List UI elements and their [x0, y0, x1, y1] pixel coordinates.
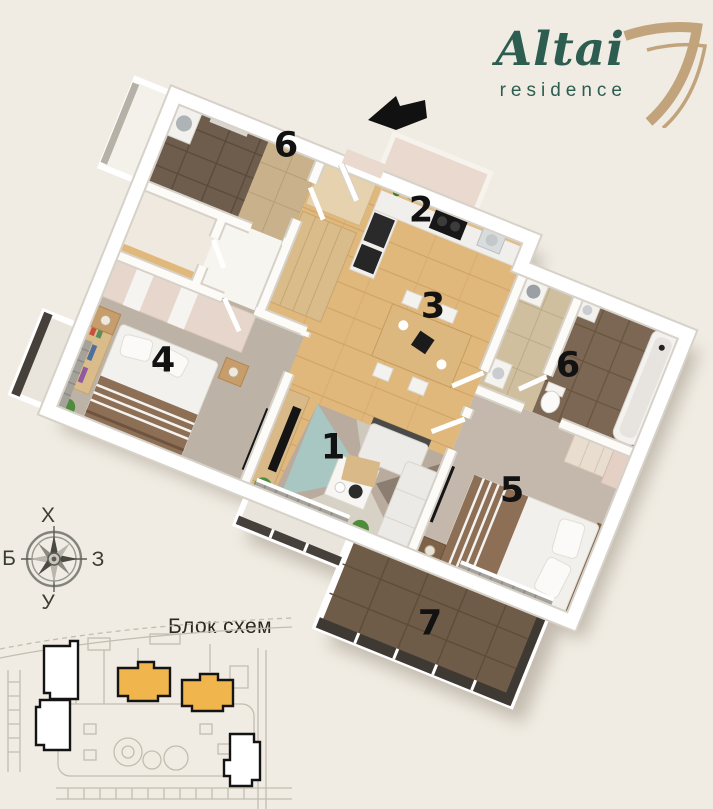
entrance-arrow: [368, 96, 427, 130]
siteplan: [0, 612, 292, 809]
compass-top-label: Х: [41, 504, 55, 528]
building-outline-1: [44, 641, 78, 699]
brand-logo: Altai residence: [455, 8, 707, 128]
room-label-bathroom: 6: [556, 349, 580, 384]
room-label-shower: 6: [274, 129, 298, 164]
room-label-balcony: 7: [418, 607, 442, 642]
building-highlight-1: [118, 662, 170, 701]
room-label-living: 1: [321, 431, 345, 466]
building-outline-2: [36, 700, 70, 750]
siteplan-buildings: [36, 641, 260, 786]
compass-rose: Х Б З У: [0, 496, 120, 620]
brand-subtitle: residence: [500, 80, 627, 102]
building-highlight-2: [182, 674, 233, 711]
compass-right-label: З: [92, 548, 105, 572]
page: { "brand": { "title": "Altai", "subtitle…: [0, 0, 713, 809]
building-outline-3: [224, 734, 260, 786]
room-label-kitchen: 2: [409, 194, 433, 229]
gold-seven-icon: [621, 10, 707, 128]
room-label-dining: 3: [421, 290, 445, 325]
room-label-bedroom5: 5: [500, 474, 524, 509]
compass-left-label: Б: [2, 547, 16, 571]
brand-title: Altai: [496, 26, 625, 73]
room-label-bedroom4: 4: [151, 344, 175, 379]
